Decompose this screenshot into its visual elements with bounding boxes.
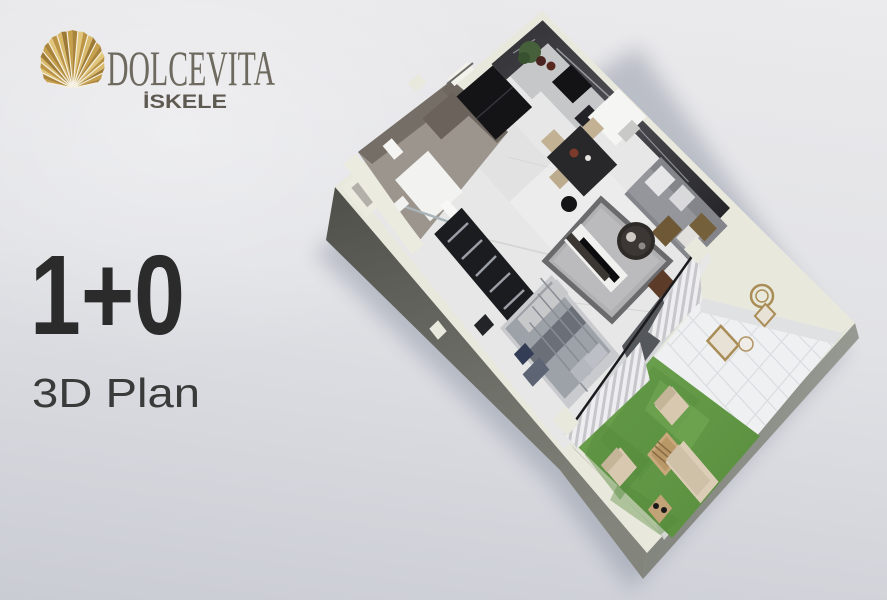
svg-text:1+0: 1+0 <box>30 232 185 358</box>
svg-text:İSKELE: İSKELE <box>143 92 227 113</box>
svg-text:3D Plan: 3D Plan <box>32 370 200 416</box>
svg-text:DOLCEVITA: DOLCEVITA <box>107 40 275 96</box>
